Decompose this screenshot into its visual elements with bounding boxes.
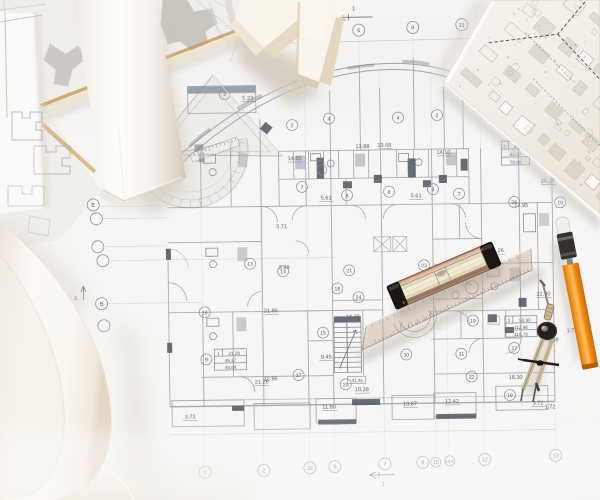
svg-text:11.80: 11.80: [322, 404, 336, 410]
svg-text:18.30: 18.30: [509, 375, 523, 381]
svg-text:14.26: 14.26: [346, 314, 360, 320]
svg-text:112.96: 112.96: [514, 325, 528, 330]
svg-text:14.60: 14.60: [288, 156, 302, 162]
svg-text:24: 24: [356, 295, 362, 301]
svg-text:16: 16: [202, 310, 208, 316]
svg-text:12.42: 12.42: [445, 399, 459, 405]
svg-text:4: 4: [397, 116, 400, 122]
svg-text:3.72: 3.72: [533, 401, 544, 407]
svg-text:5.61: 5.61: [411, 193, 422, 199]
svg-text:46.17: 46.17: [225, 358, 237, 363]
svg-text:9: 9: [205, 357, 208, 363]
svg-text:2: 2: [291, 123, 294, 129]
svg-text:9: 9: [411, 25, 414, 31]
svg-text:50.90: 50.90: [519, 318, 531, 323]
svg-text:7: 7: [301, 185, 304, 191]
svg-text:6: 6: [357, 28, 360, 34]
svg-text:6: 6: [432, 187, 435, 193]
svg-text:5: 5: [320, 168, 323, 174]
svg-text:22.00: 22.00: [536, 291, 550, 297]
svg-text:4: 4: [328, 117, 331, 123]
svg-text:21.85: 21.85: [264, 308, 278, 314]
svg-text:49.69: 49.69: [225, 365, 237, 370]
svg-text:17: 17: [296, 373, 302, 379]
svg-text:22: 22: [469, 375, 475, 381]
svg-text:20: 20: [343, 382, 349, 388]
svg-text:21.26: 21.26: [229, 351, 241, 356]
svg-text:27: 27: [511, 346, 517, 352]
svg-text:10: 10: [557, 200, 563, 206]
svg-text:12.96: 12.96: [264, 376, 278, 382]
svg-text:30: 30: [403, 352, 409, 358]
svg-text:13: 13: [247, 262, 253, 268]
svg-text:1.72: 1.72: [545, 404, 556, 410]
svg-text:23: 23: [421, 263, 427, 269]
svg-text:3.71: 3.71: [276, 224, 287, 230]
svg-text:E: E: [91, 203, 95, 209]
svg-text:10.28: 10.28: [355, 387, 369, 393]
svg-text:13.87: 13.87: [403, 401, 417, 407]
svg-text:5.23: 5.23: [242, 96, 253, 102]
svg-text:7: 7: [458, 192, 461, 198]
svg-text:-31.35: -31.35: [350, 378, 363, 383]
svg-text:119.78: 119.78: [514, 332, 528, 337]
svg-text:14: 14: [280, 269, 286, 275]
svg-text:21: 21: [346, 268, 352, 274]
svg-text:13.68: 13.68: [377, 143, 391, 149]
svg-text:8: 8: [388, 190, 391, 196]
svg-text:3.72: 3.72: [185, 414, 196, 420]
svg-text:9.45: 9.45: [321, 355, 332, 361]
svg-text:14.10: 14.10: [436, 150, 450, 156]
svg-text:26: 26: [511, 200, 517, 206]
svg-text:18: 18: [334, 286, 340, 292]
svg-text:8: 8: [346, 193, 349, 199]
svg-text:31: 31: [458, 352, 464, 358]
svg-text:19: 19: [470, 319, 476, 325]
svg-text:1: 1: [352, 6, 355, 12]
svg-text:5.61: 5.61: [321, 196, 332, 202]
svg-text:19: 19: [507, 393, 513, 399]
svg-text:2: 2: [436, 113, 439, 119]
svg-text:B: B: [100, 302, 104, 308]
svg-text:15: 15: [320, 331, 326, 337]
svg-text:13.88: 13.88: [355, 144, 369, 150]
